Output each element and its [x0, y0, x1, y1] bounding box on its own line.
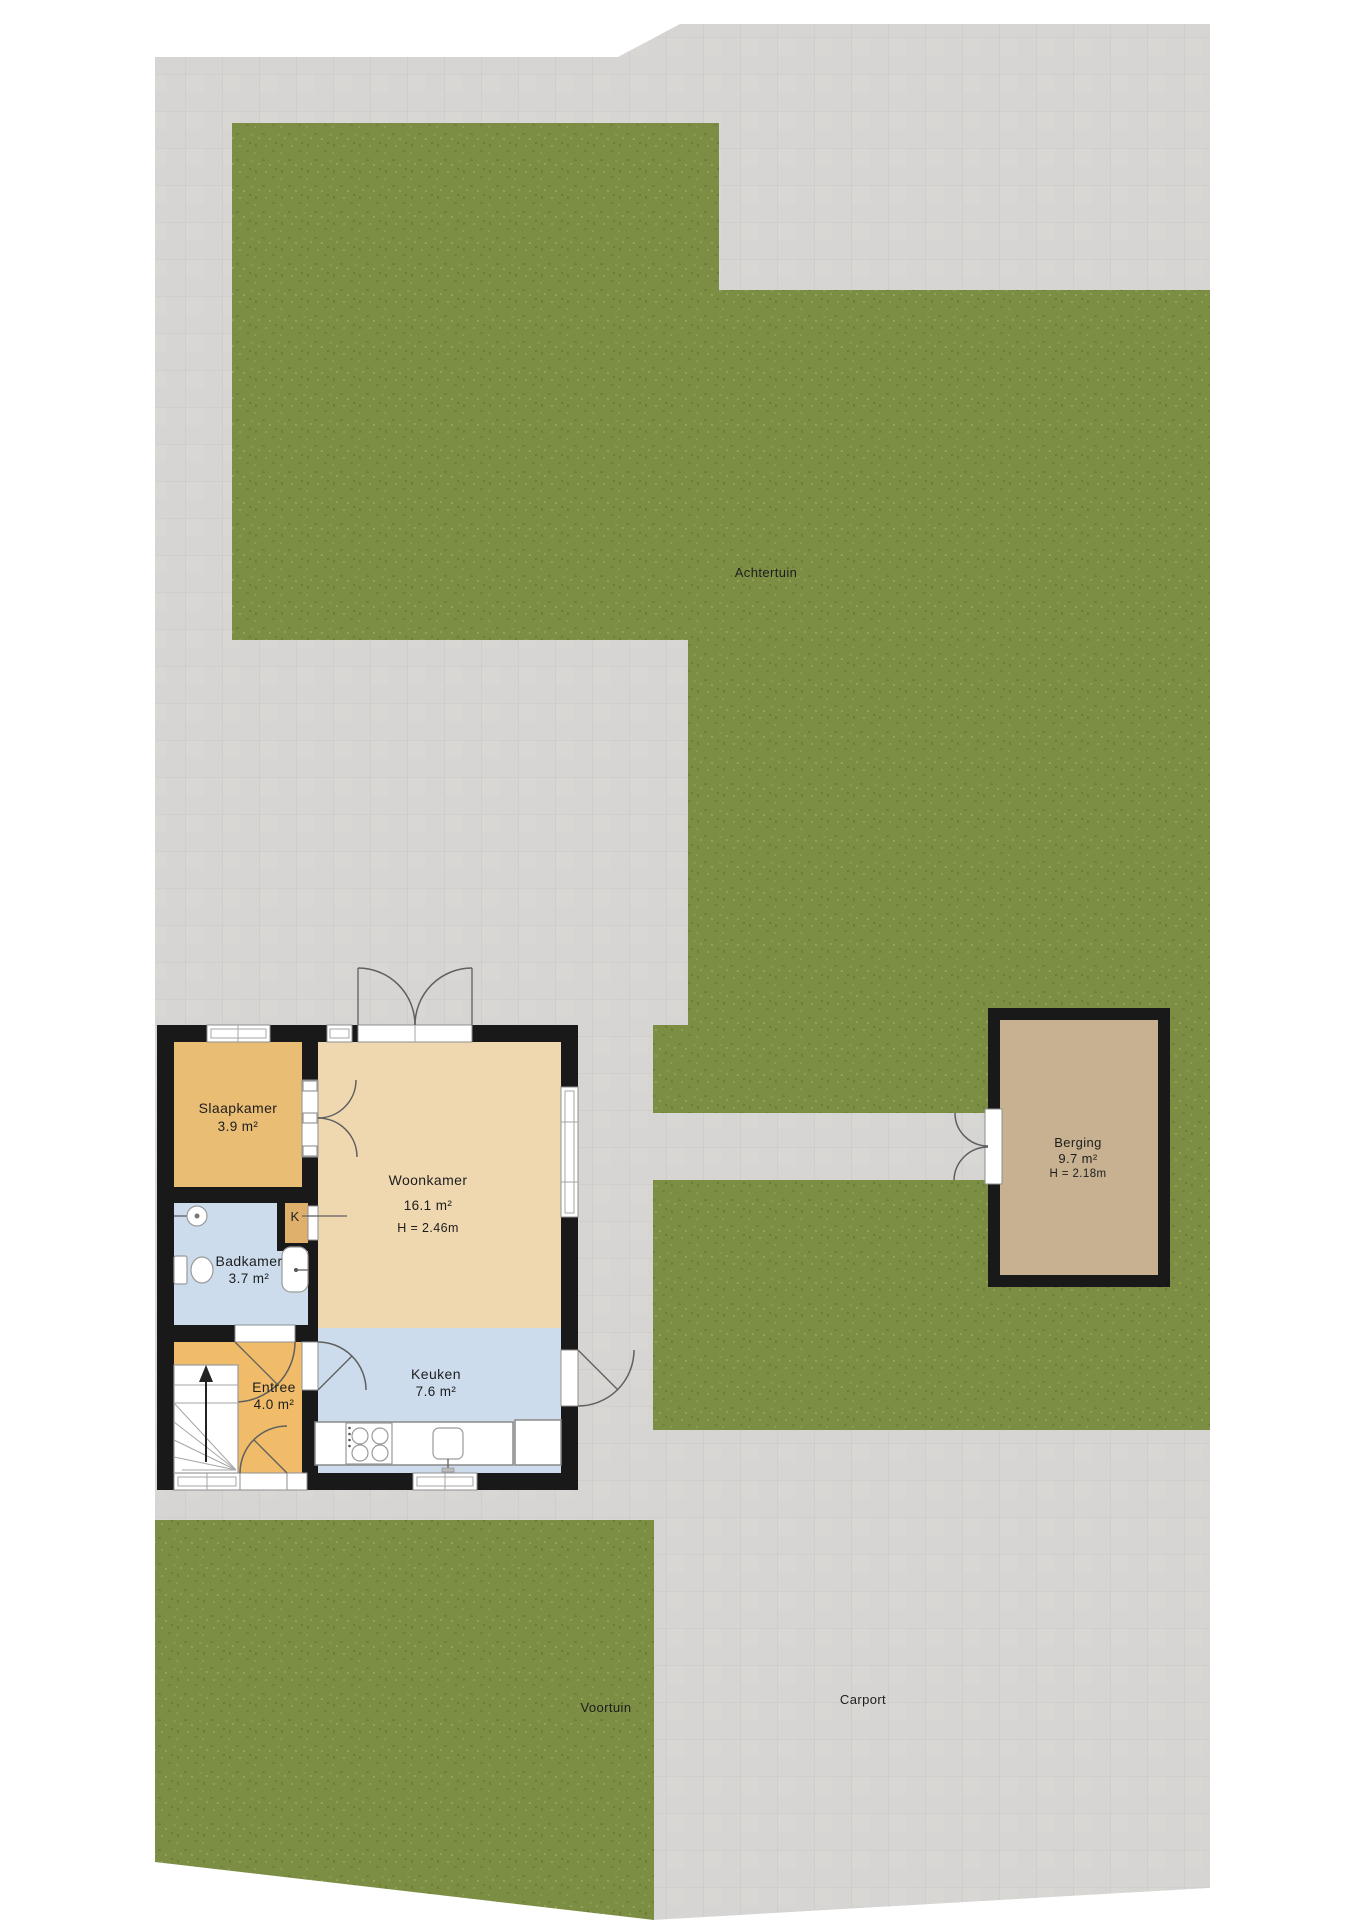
floorplan-drawing: Achtertuin Voortuin Carport Slaapkamer 3… — [0, 0, 1358, 1920]
window-woonkamer-top — [327, 1025, 352, 1042]
side-panel-front-door — [287, 1473, 307, 1490]
berging-path — [578, 1113, 988, 1180]
achtertuin-label: Achtertuin — [735, 565, 798, 580]
window-slaapkamer — [207, 1025, 270, 1042]
berging-label: Berging — [1054, 1135, 1102, 1150]
window-woonkamer-right — [561, 1087, 578, 1217]
berging-area: 9.7 m² — [1058, 1151, 1098, 1166]
slaapkamer-area: 3.9 m² — [218, 1119, 259, 1134]
window-keuken-bottom — [413, 1473, 477, 1490]
kast-label: K — [290, 1209, 299, 1224]
keuken-fixtures — [315, 1420, 561, 1472]
keuken-label: Keuken — [411, 1366, 461, 1382]
badkamer-label: Badkamer — [215, 1253, 282, 1269]
stairs-icon — [174, 1365, 238, 1473]
washbasin-icon — [282, 1247, 308, 1292]
entree-label: Entree — [252, 1379, 296, 1395]
voortuin-lawn — [155, 1520, 654, 1920]
site — [155, 24, 1210, 1920]
keuken-area: 7.6 m² — [416, 1384, 457, 1399]
woonkamer-label: Woonkamer — [389, 1172, 468, 1188]
carport-label: Carport — [840, 1692, 886, 1707]
woonkamer-height: H = 2.46m — [397, 1221, 459, 1235]
window-entree-bottom — [174, 1473, 240, 1490]
entree-area: 4.0 m² — [254, 1397, 295, 1412]
kitchen-counter — [315, 1422, 513, 1465]
slaapkamer-label: Slaapkamer — [199, 1100, 278, 1116]
floorplan-page: Achtertuin Voortuin Carport Slaapkamer 3… — [0, 0, 1358, 1920]
berging-height: H = 2.18m — [1050, 1168, 1107, 1180]
house — [157, 968, 634, 1490]
voortuin-label: Voortuin — [581, 1700, 632, 1715]
woonkamer-area: 16.1 m² — [404, 1198, 453, 1213]
stove-icon — [346, 1423, 392, 1464]
kitchen-cabinet — [515, 1420, 561, 1465]
badkamer-area: 3.7 m² — [229, 1271, 270, 1286]
